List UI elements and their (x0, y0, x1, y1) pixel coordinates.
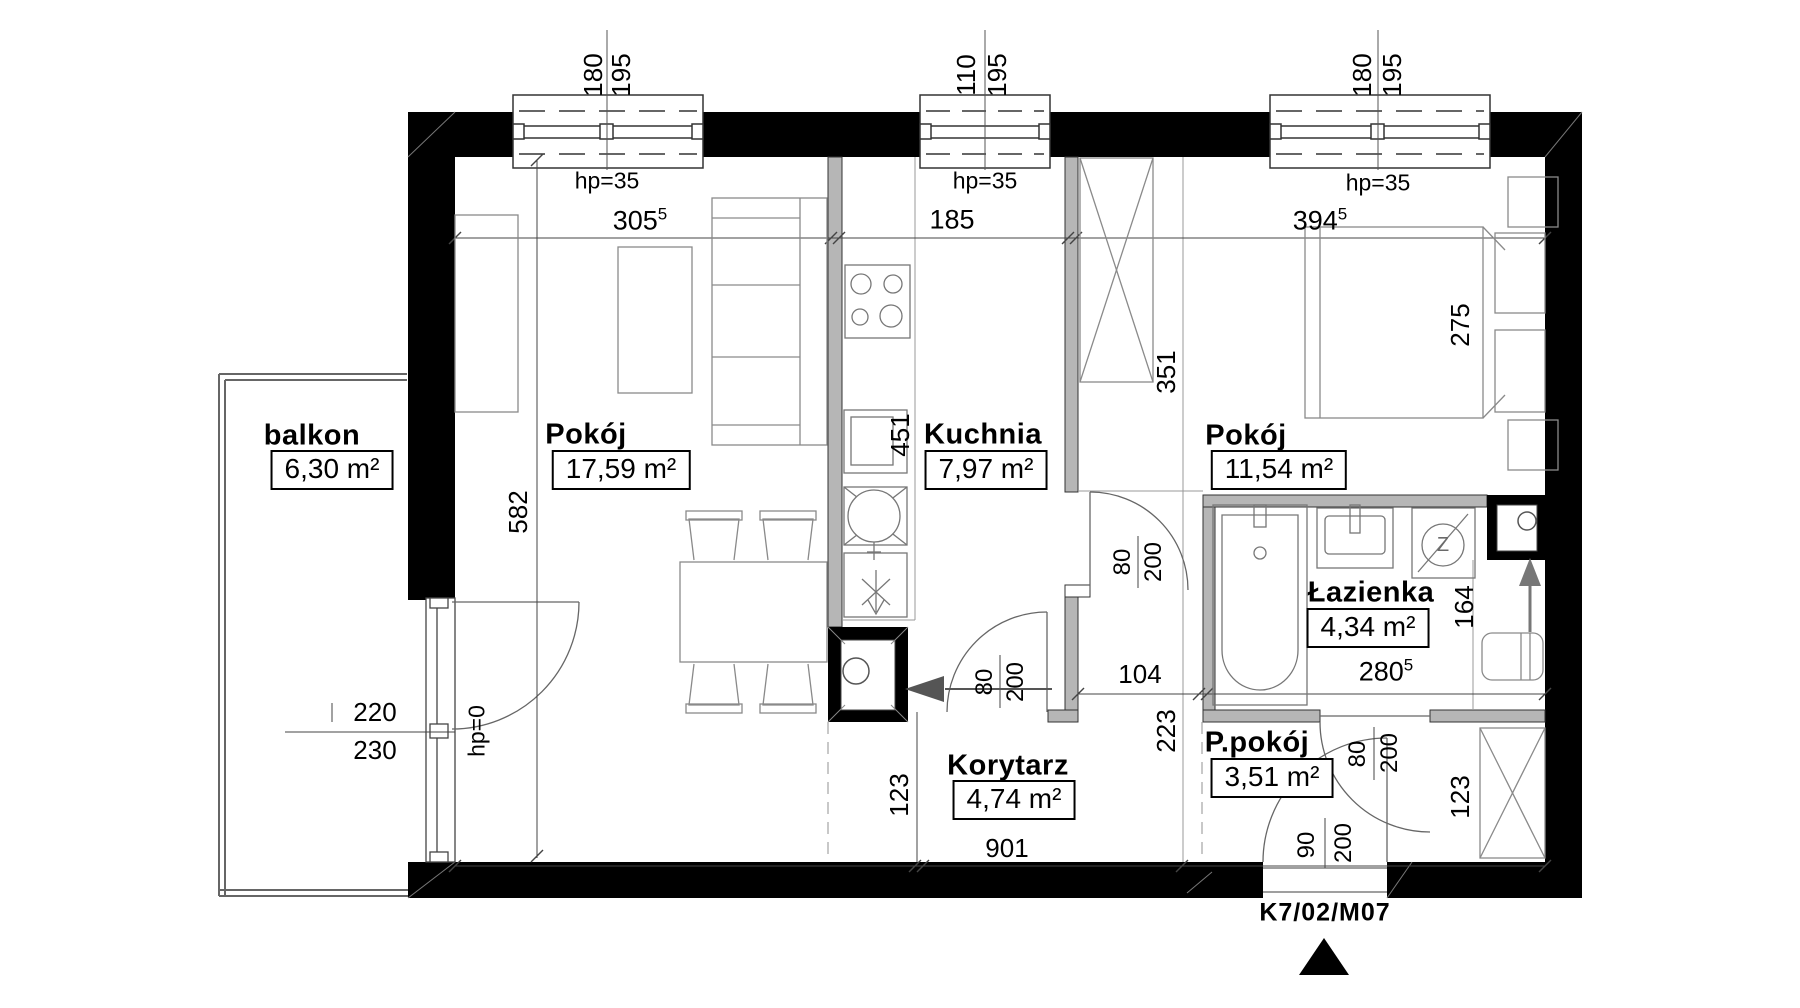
room-name-livingroom: Pokój (545, 421, 626, 450)
vestibule-width-dim: 123 (1447, 775, 1473, 818)
room-name-corridor: Korytarz (947, 752, 1069, 781)
window-middle-height-dim: 195 (984, 53, 1010, 96)
balcony-door-sill-label: hp=0 (466, 705, 489, 757)
window-middle-width-dim: 110 (953, 54, 979, 95)
kitchen-door (947, 612, 1047, 712)
entrance-door-height-dim: 200 (1332, 823, 1356, 863)
balcony-door-width-dim: 220 (353, 699, 396, 725)
floorplan-linework (0, 0, 1800, 1008)
unit-id-label: K7/02/M07 (1259, 901, 1390, 926)
hall-door-width-dim: 80 (1111, 549, 1135, 576)
hall-width-dim: 104 (1118, 661, 1161, 687)
living-height-dim: 582 (505, 490, 531, 533)
kitchen-door-width-dim: 80 (973, 669, 997, 696)
room-area-utility: 3,51 m² (1211, 758, 1334, 798)
corridor-width-dim: 123 (886, 773, 912, 816)
door-jamb-cap (1065, 585, 1090, 597)
window-left-height-dim: 195 (608, 53, 634, 96)
room-area-bedroom: 11,54 m² (1211, 450, 1347, 490)
window-left-width-dim: 180 (580, 53, 606, 96)
bed-length-dim: 275 (1447, 303, 1473, 346)
room-area-corridor: 4,74 m² (953, 780, 1076, 820)
floor-plan: 180 195 110 195 180 195 hp=35 hp=35 hp=3… (0, 0, 1800, 1008)
living-width-dim: 3055 (613, 208, 668, 235)
window-right (1270, 95, 1490, 168)
bathroom-width-dim: 2805 (1359, 659, 1414, 686)
kitchen-door-height-dim: 200 (1004, 662, 1028, 702)
bathroom-door-height-dim: 200 (1378, 733, 1402, 773)
vestibule-objects (1480, 633, 1545, 858)
room-name-utility: P.pokój (1205, 729, 1310, 758)
kitchen-length-dim: 451 (887, 413, 913, 456)
window-right-width-dim: 180 (1349, 53, 1375, 96)
kitchen-width-dim: 185 (929, 207, 974, 234)
window-middle-sill-label: hp=35 (953, 170, 1018, 193)
room-name-balkon: balkon (264, 422, 360, 451)
up-arrow-icon (1519, 558, 1541, 632)
total-width-dim: 901 (985, 835, 1028, 861)
room-area-bathroom: 4,34 m² (1307, 608, 1430, 648)
corridor-shaft (828, 627, 908, 722)
wardrobe-length-dim: 351 (1153, 350, 1179, 393)
room-area-balkon: 6,30 m² (271, 450, 394, 490)
entrance-door-width-dim: 90 (1295, 832, 1319, 859)
utility-height-dim: 223 (1153, 709, 1179, 752)
room-name-bedroom: Pokój (1205, 422, 1286, 451)
washing-machine-icon: Z (1437, 535, 1449, 555)
bedroom-width-dim: 3945 (1293, 208, 1348, 235)
balcony-door (426, 598, 579, 862)
room-name-kitchen: Kuchnia (924, 421, 1042, 450)
room-area-livingroom: 17,59 m² (552, 450, 691, 490)
window-left-sill-label: hp=35 (575, 170, 640, 193)
room-name-bathroom: Łazienka (1308, 579, 1435, 608)
hall-door (1090, 492, 1188, 590)
washer-nook-dim: 164 (1451, 585, 1477, 628)
hall-wardrobe (1080, 158, 1153, 382)
window-right-sill-label: hp=35 (1346, 172, 1411, 195)
bathroom-door-width-dim: 80 (1346, 741, 1370, 768)
bathroom-shaft (1487, 495, 1545, 560)
window-right-height-dim: 195 (1379, 53, 1405, 96)
bathroom-door (1320, 716, 1430, 832)
hall-door-height-dim: 200 (1142, 542, 1166, 582)
balcony-door-height-dim: 230 (353, 737, 396, 763)
room-area-kitchen: 7,97 m² (925, 450, 1048, 490)
entrance-triangle-icon (1299, 938, 1349, 975)
window-left (513, 95, 703, 168)
